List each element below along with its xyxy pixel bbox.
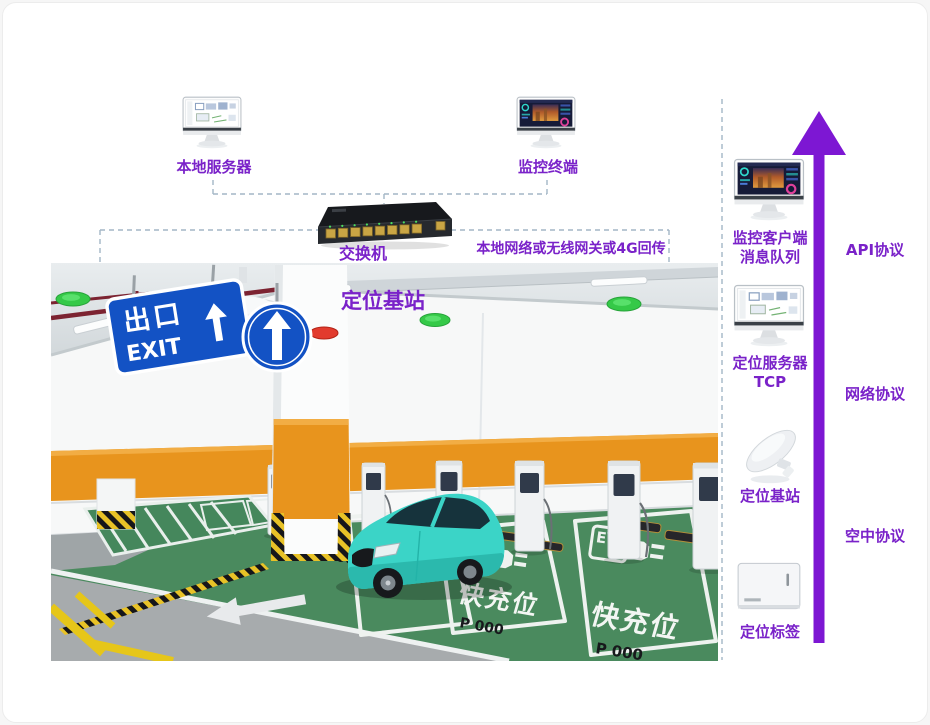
monitoring-client-line2: 消息队列 [723, 248, 817, 267]
local-server-monitor-icon [181, 95, 243, 149]
monitoring-client-line1: 监控客户端 [723, 229, 817, 248]
monitoring-client-monitor-icon [731, 157, 807, 221]
diagram-card: 本地服务器 监控终端 [2, 2, 928, 723]
beacon-dome-label: 定位基站 [723, 487, 817, 506]
beacon-dome-icon [737, 419, 805, 487]
positioning-server-line2: TCP [723, 373, 817, 392]
monitor-terminal-icon [515, 95, 577, 149]
monitoring-client-label: 监控客户端 消息队列 [723, 229, 817, 267]
positioning-tag-label: 定位标签 [723, 623, 817, 642]
monitor-terminal-label: 监控终端 [506, 158, 590, 177]
positioning-tag-icon [734, 559, 806, 615]
protocol-network-label: 网络协议 [837, 385, 913, 404]
photo-base-station-label: 定位基站 [341, 289, 425, 313]
local-server-label: 本地服务器 [168, 158, 260, 177]
protocol-air-label: 空中协议 [837, 527, 913, 546]
positioning-server-line1: 定位服务器 [723, 354, 817, 373]
switch-label: 交换机 [321, 244, 405, 264]
screenshot-stage: 本地服务器 监控终端 [0, 0, 930, 725]
positioning-server-label: 定位服务器 TCP [723, 354, 817, 392]
parking-garage-photo: EV EV 快充位 快充位 P 000 P 000 P 000 [51, 263, 718, 661]
network-backhaul-label: 本地网络或无线网关或4G回传 [469, 241, 673, 259]
protocol-api-label: API协议 [837, 241, 913, 260]
positioning-server-monitor-icon [731, 283, 807, 347]
